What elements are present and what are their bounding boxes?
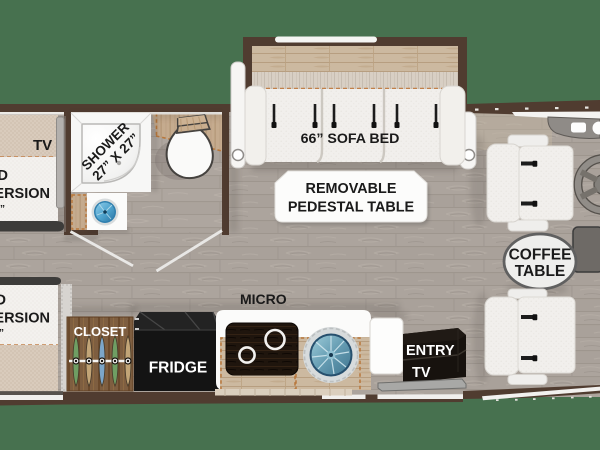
svg-text:53”: 53” (0, 204, 5, 215)
svg-text:TABLE: TABLE (515, 263, 566, 280)
svg-text:ENTRY: ENTRY (406, 343, 455, 359)
svg-text:66” SOFA BED: 66” SOFA BED (301, 131, 400, 147)
svg-text:FRIDGE: FRIDGE (149, 360, 208, 377)
svg-text:CONVERSION: CONVERSION (0, 186, 50, 202)
svg-text:TV: TV (33, 137, 52, 154)
svg-text:CLOSET: CLOSET (74, 324, 127, 339)
svg-text:PEDESTAL TABLE: PEDESTAL TABLE (288, 200, 415, 216)
svg-text:REMOVABLE: REMOVABLE (306, 181, 397, 197)
svg-text:MICRO: MICRO (240, 291, 287, 307)
svg-text:BED: BED (0, 168, 8, 184)
svg-text:53”: 53” (0, 328, 4, 339)
svg-text:TV: TV (412, 365, 431, 381)
svg-text:COFFEE: COFFEE (509, 247, 572, 264)
svg-text:BED: BED (0, 293, 6, 309)
svg-text:CONVERSION: CONVERSION (0, 311, 50, 327)
